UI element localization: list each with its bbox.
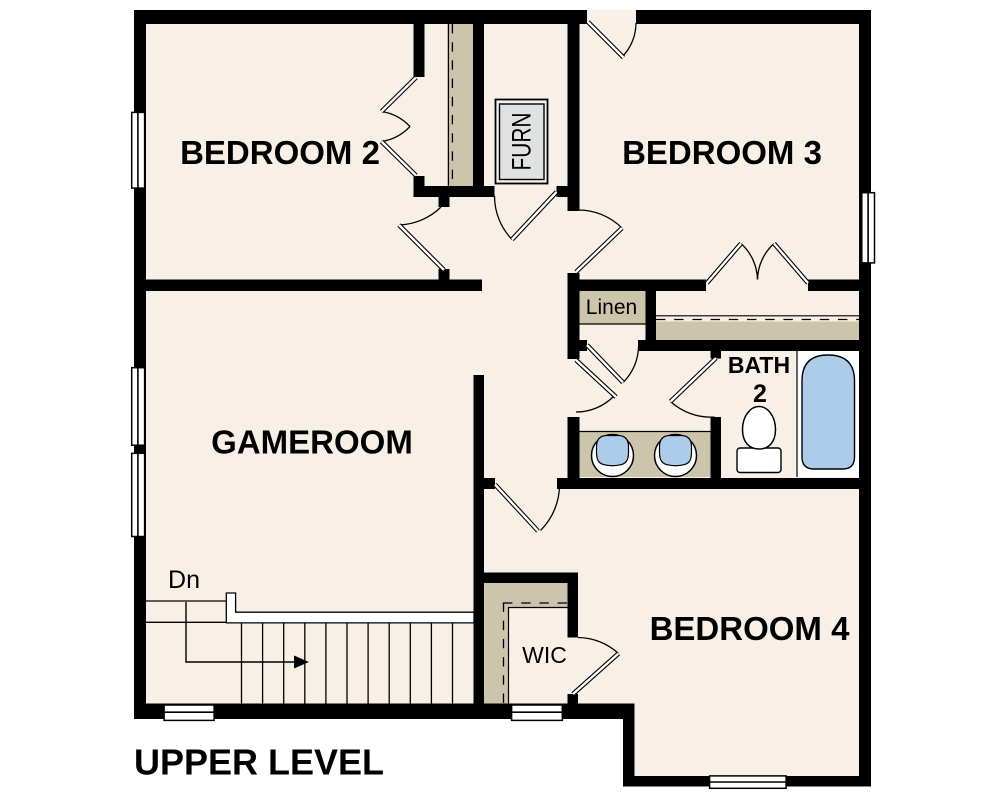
svg-text:BEDROOM 4: BEDROOM 4	[650, 610, 851, 647]
svg-text:BEDROOM 3: BEDROOM 3	[622, 134, 822, 171]
svg-text:BEDROOM 2: BEDROOM 2	[180, 134, 380, 171]
svg-text:WIC: WIC	[522, 642, 567, 668]
svg-text:UPPER LEVEL: UPPER LEVEL	[134, 742, 384, 783]
svg-text:2: 2	[753, 380, 767, 408]
svg-text:Dn: Dn	[168, 566, 200, 594]
svg-text:GAMEROOM: GAMEROOM	[211, 424, 413, 461]
svg-text:FURN: FURN	[507, 113, 537, 171]
svg-text:Linen: Linen	[586, 296, 637, 319]
svg-text:BATH: BATH	[728, 352, 790, 378]
